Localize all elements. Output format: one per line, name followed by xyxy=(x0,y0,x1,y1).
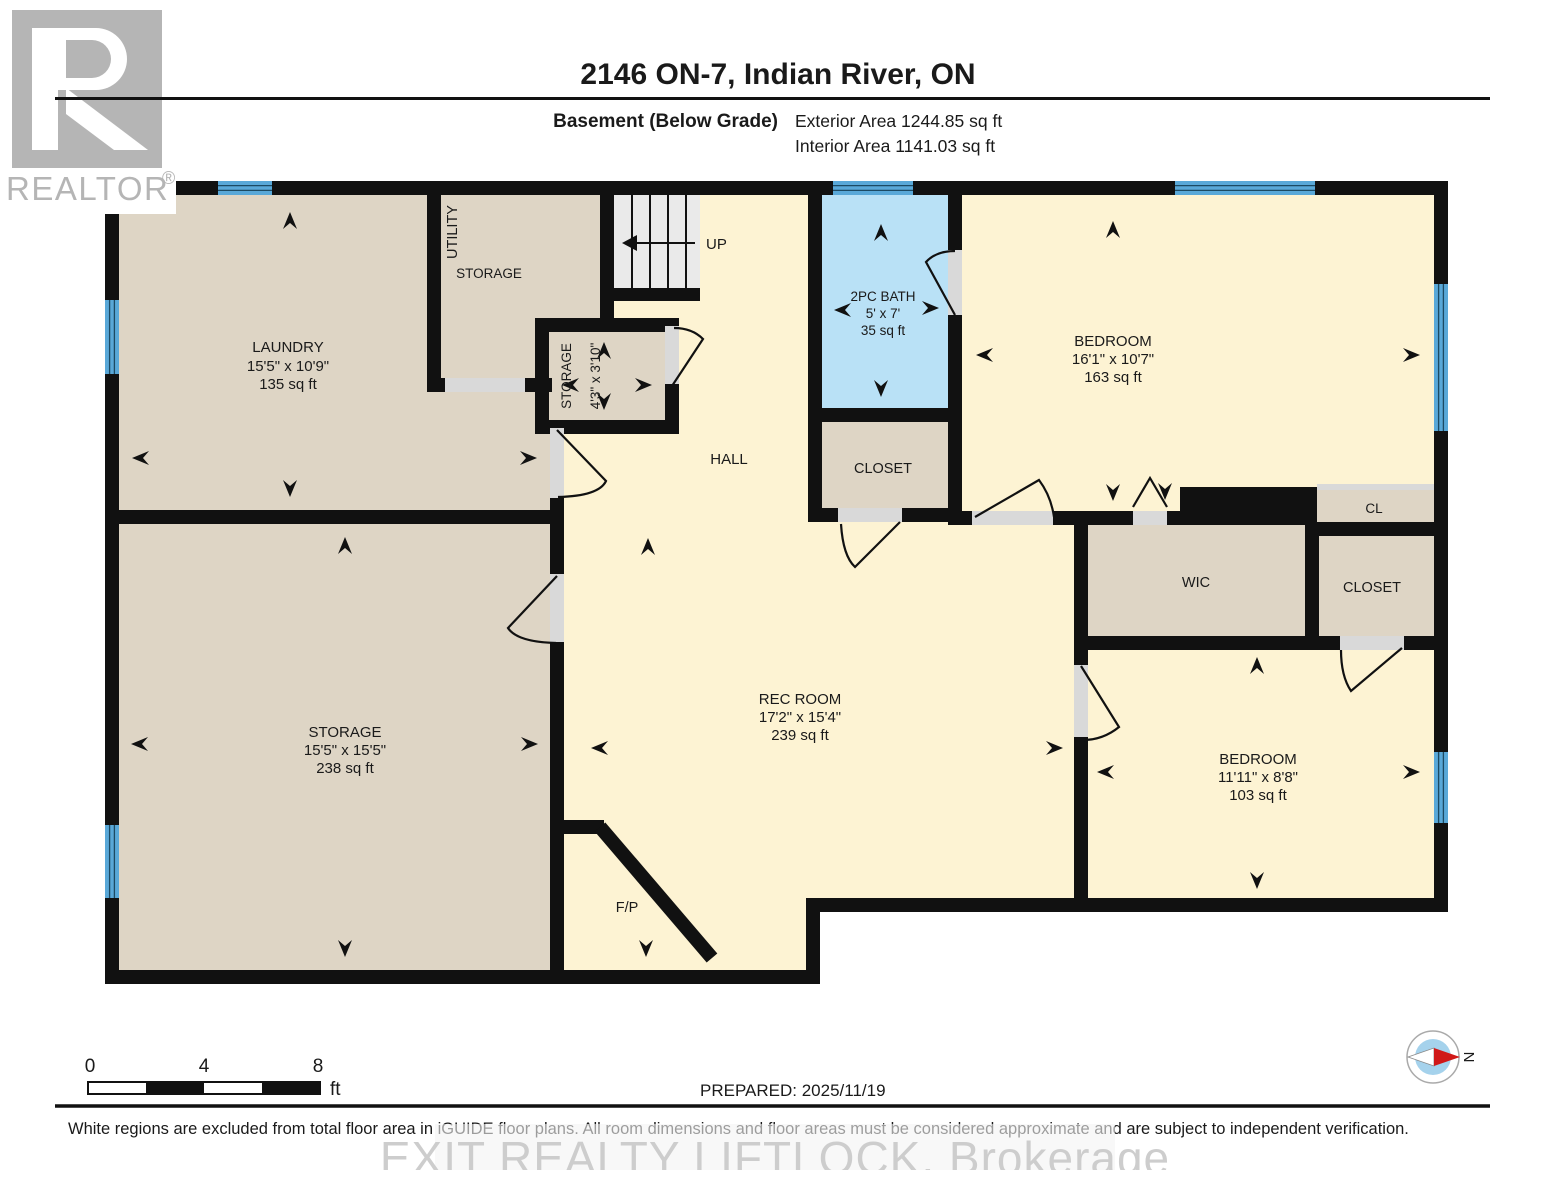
scale-unit: ft xyxy=(330,1079,341,1100)
door-opening xyxy=(972,511,1053,525)
window xyxy=(105,300,119,374)
window xyxy=(833,181,913,195)
stairs-up-label: UP xyxy=(706,236,727,253)
realtor-logo xyxy=(12,10,162,168)
page-title: 2146 ON-7, Indian River, ON xyxy=(580,58,975,91)
bedroom-bottom-label: BEDROOM xyxy=(1219,751,1297,768)
rec-room-area: 239 sq ft xyxy=(771,727,829,744)
utility-label: UTILITY xyxy=(445,205,461,259)
door-opening xyxy=(550,574,564,642)
door-opening xyxy=(445,378,525,392)
scale-tick-8: 8 xyxy=(313,1056,324,1077)
bath-label: 2PC BATH xyxy=(850,289,915,304)
storage-big-label: STORAGE xyxy=(308,724,381,741)
storage-small-label: STORAGE xyxy=(559,343,574,409)
window xyxy=(105,825,119,898)
closet-right-label: CLOSET xyxy=(1343,580,1401,596)
watermark-cutoff xyxy=(0,1170,1553,1200)
compass-icon: N xyxy=(1407,1031,1477,1083)
door-opening xyxy=(1133,511,1167,525)
registered-mark-icon: ® xyxy=(162,168,175,188)
exterior-area: Exterior Area 1244.85 sq ft xyxy=(795,111,1002,131)
wic-label: WIC xyxy=(1182,575,1210,591)
window xyxy=(1434,284,1448,431)
scale-tick-0: 0 xyxy=(85,1056,96,1077)
prepared-date: PREPARED: 2025/11/19 xyxy=(700,1081,886,1100)
storage-small-dims: 4'3" x 3'10" xyxy=(588,343,603,410)
fireplace-label: F/P xyxy=(616,900,639,916)
laundry-area: 135 sq ft xyxy=(259,376,317,393)
window xyxy=(1434,752,1448,823)
rec-room-label: REC ROOM xyxy=(759,691,842,708)
storage-big-area: 238 sq ft xyxy=(316,760,374,777)
cl-label: CL xyxy=(1365,501,1383,516)
compass-north-label: N xyxy=(1460,1052,1477,1063)
header: 2146 ON-7, Indian River, ON Basement (Be… xyxy=(55,58,1490,156)
scale-bar: 0 4 8 ft xyxy=(85,1056,342,1100)
rec-room-dims: 17'2" x 15'4" xyxy=(759,709,841,726)
realtor-wordmark: REALTOR xyxy=(6,170,169,207)
interior-area: Interior Area 1141.03 sq ft xyxy=(795,136,995,156)
bedroom-top-dims: 16'1" x 10'7" xyxy=(1072,351,1154,368)
cl-opening xyxy=(1317,484,1434,490)
door-opening xyxy=(838,508,902,522)
bedroom-bottom-area: 103 sq ft xyxy=(1229,787,1287,804)
bedroom-top-area: 163 sq ft xyxy=(1084,369,1142,386)
footer: White regions are excluded from total fl… xyxy=(0,1106,1553,1200)
bath-dims: 5' x 7' xyxy=(866,306,900,321)
floor-plan: LAUNDRY 15'5" x 10'9" 135 sq ft UTILITY … xyxy=(105,181,1448,984)
room-fills xyxy=(119,195,1434,970)
bedroom-top-label: BEDROOM xyxy=(1074,333,1152,350)
storage-big-dims: 15'5" x 15'5" xyxy=(304,742,386,759)
laundry-dims: 15'5" x 10'9" xyxy=(247,358,329,375)
bath-area: 35 sq ft xyxy=(861,323,906,338)
closet-bath-label: CLOSET xyxy=(854,461,912,477)
floor-label: Basement (Below Grade) xyxy=(553,111,778,132)
door-opening xyxy=(665,326,679,384)
scale-tick-4: 4 xyxy=(199,1056,210,1077)
door-opening xyxy=(1340,636,1404,650)
hall-label: HALL xyxy=(710,451,748,468)
door-opening xyxy=(550,428,564,498)
floor-plan-page: LAUNDRY 15'5" x 10'9" 135 sq ft UTILITY … xyxy=(0,0,1553,1200)
window xyxy=(218,181,272,195)
window xyxy=(1175,181,1315,195)
laundry-label: LAUNDRY xyxy=(252,339,323,356)
bedroom-bottom-dims: 11'11" x 8'8" xyxy=(1218,769,1298,786)
utility-storage-label: STORAGE xyxy=(456,266,522,281)
